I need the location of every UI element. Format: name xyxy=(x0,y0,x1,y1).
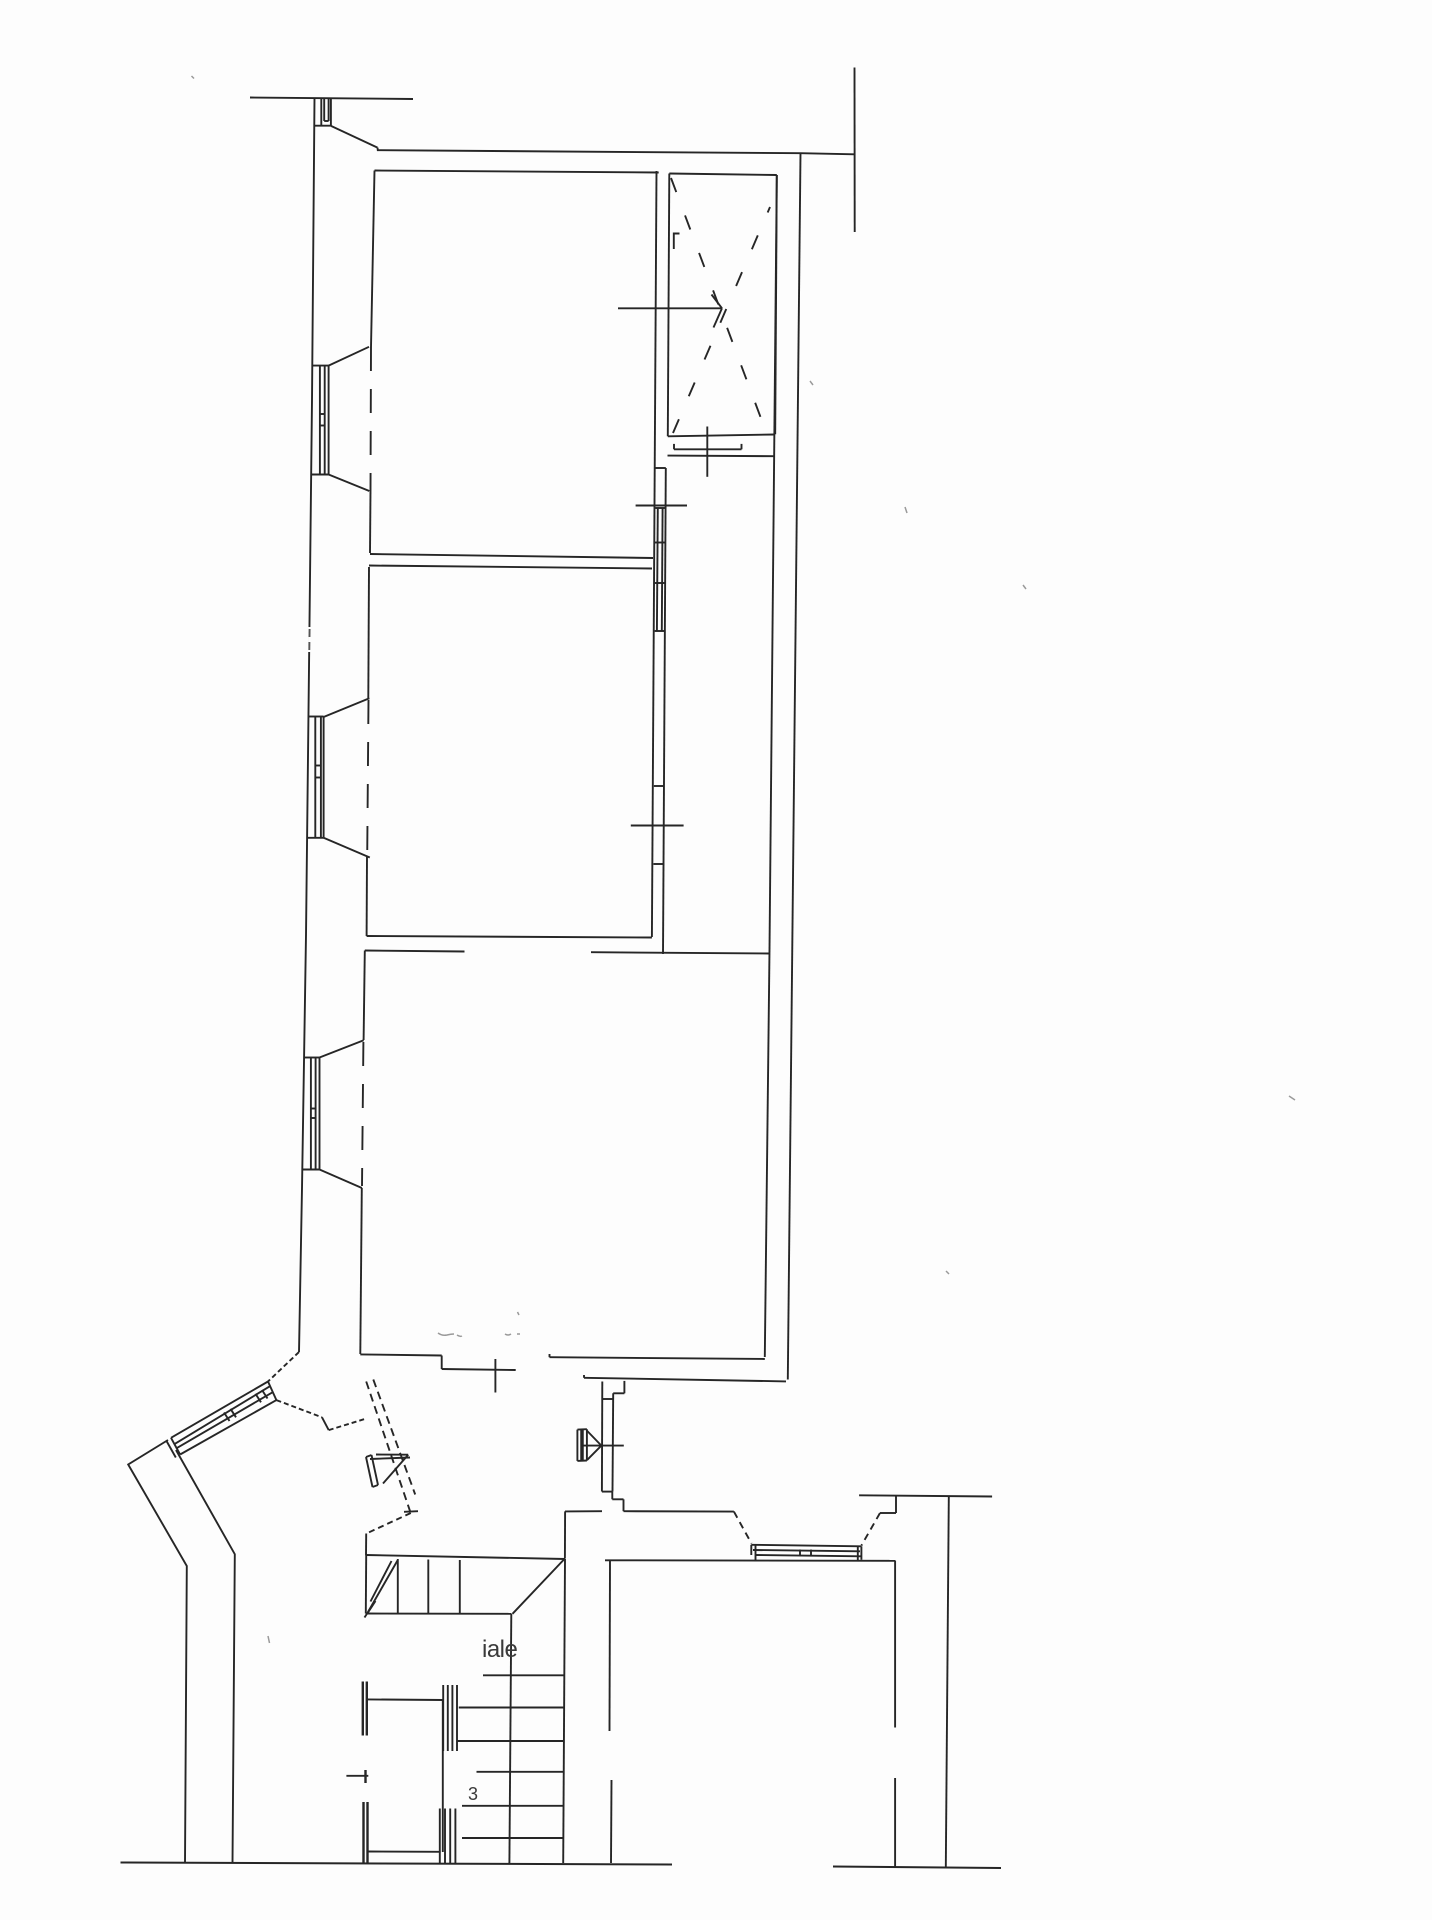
svg-text:iale: iale xyxy=(482,1636,518,1663)
svg-text:3: 3 xyxy=(468,1784,478,1804)
